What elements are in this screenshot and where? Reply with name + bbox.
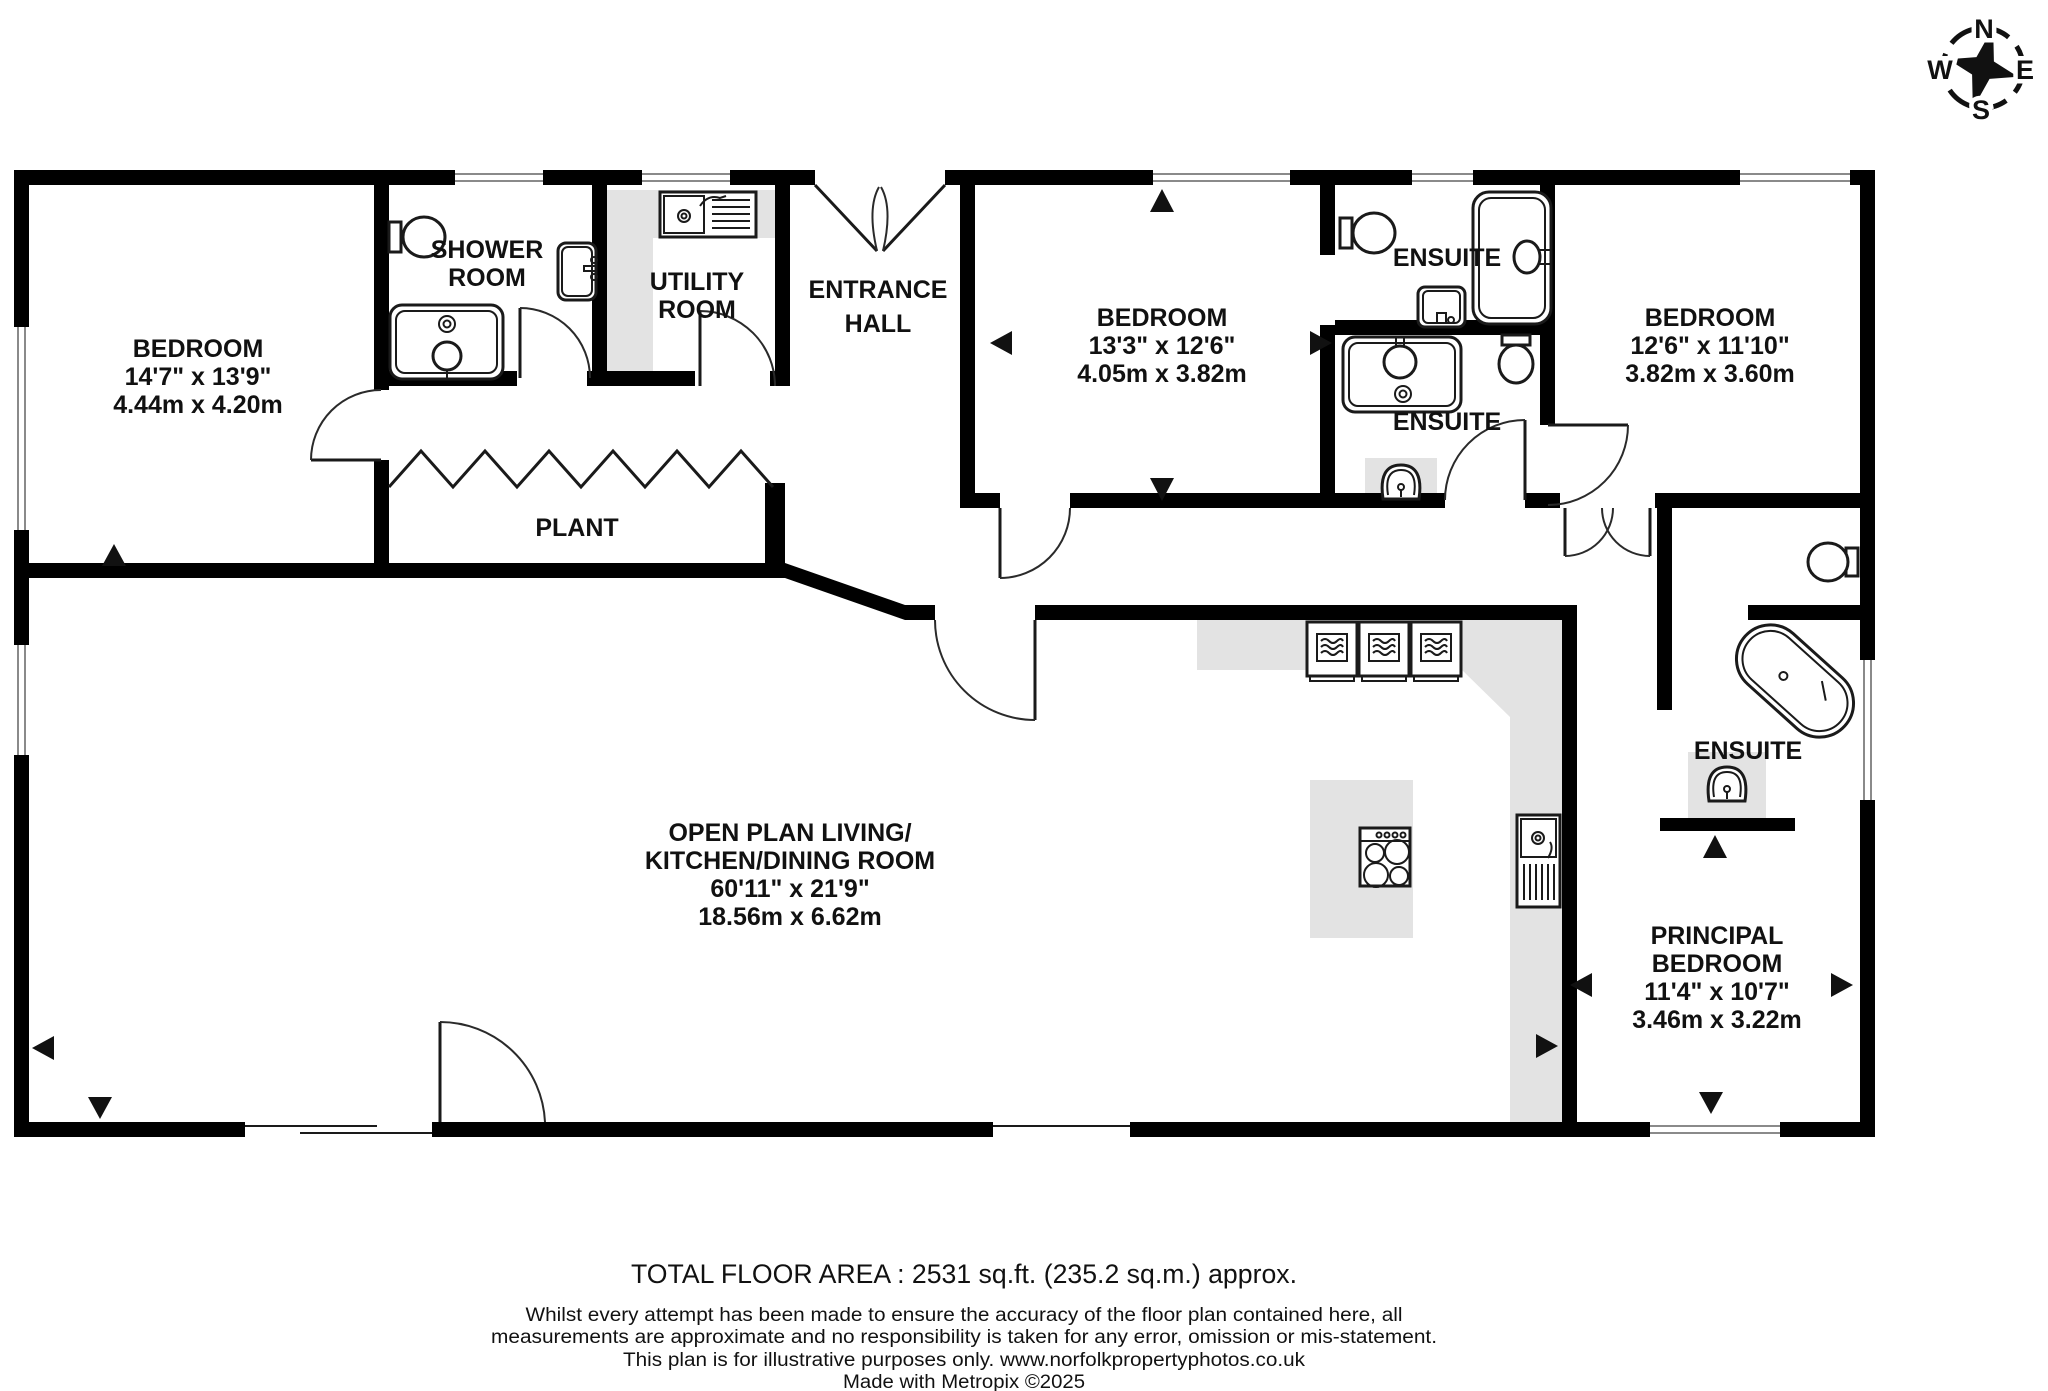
door-bedroom-middle xyxy=(1000,508,1070,578)
room-dims-imperial: 14'7" x 13'9" xyxy=(125,363,272,391)
room-label-utility-room: UTILITY ROOM xyxy=(650,268,745,324)
washbasin-icon xyxy=(1708,767,1746,801)
disclaimer-line: This plan is for illustrative purposes o… xyxy=(623,1350,1306,1371)
arrow-up-icon xyxy=(102,544,126,566)
double-door-principal xyxy=(1565,508,1650,556)
room-name: BEDROOM xyxy=(1645,304,1776,332)
walls xyxy=(14,170,1875,1137)
shower-tray-icon xyxy=(390,305,503,379)
oven-icon xyxy=(1359,622,1409,681)
arrow-left-icon xyxy=(32,1036,54,1060)
compass-north: N xyxy=(1974,14,1994,44)
door-bedroom-left xyxy=(311,390,381,460)
room-name: ENTRANCE xyxy=(809,276,948,304)
disclaimer-line: Made with Metropix ©2025 xyxy=(843,1372,1085,1391)
room-name: ROOM xyxy=(448,264,526,292)
room-dims-metric: 4.44m x 4.20m xyxy=(113,391,283,419)
diagonal-wall xyxy=(785,563,905,620)
arrow-down-icon xyxy=(1699,1092,1723,1114)
room-dims-metric: 3.46m x 3.22m xyxy=(1632,1006,1802,1034)
hob-icon xyxy=(1360,828,1410,887)
room-name: BEDROOM xyxy=(1097,304,1228,332)
total-floor-area: TOTAL FLOOR AREA : 2531 sq.ft. (235.2 sq… xyxy=(631,1259,1297,1289)
arrow-left-icon xyxy=(990,331,1012,355)
toilet-icon xyxy=(1340,213,1395,253)
basin-icon xyxy=(1418,287,1465,327)
room-label-entrance-hall: ENTRANCE HALL xyxy=(809,276,948,338)
door-open-plan xyxy=(935,620,1035,720)
disclaimer-line: measurements are approximate and no resp… xyxy=(491,1327,1437,1348)
room-name: BEDROOM xyxy=(133,335,264,363)
sink-drainer-icon xyxy=(660,192,756,237)
arrow-up-icon xyxy=(1703,835,1727,858)
room-name: HALL xyxy=(845,310,912,338)
disclaimer-line: Whilst every attempt has been made to en… xyxy=(526,1305,1403,1326)
toilet-icon xyxy=(1808,543,1858,581)
room-dims-metric: 18.56m x 6.62m xyxy=(698,903,881,931)
door-shower-room xyxy=(520,308,590,378)
room-name: ROOM xyxy=(658,296,736,324)
room-label-ensuite-upper: ENSUITE xyxy=(1393,244,1501,272)
room-label-bedroom-right: BEDROOM 12'6" x 11'10" 3.82m x 3.60m xyxy=(1625,304,1795,388)
vanity-basin-icon xyxy=(1343,337,1461,412)
ensuite-shelf-wall xyxy=(1660,818,1795,831)
basin-icon xyxy=(558,243,597,300)
floorplan-page: BEDROOM 14'7" x 13'9" 4.44m x 4.20m SHOW… xyxy=(0,0,2048,1391)
room-label-bedroom-middle: BEDROOM 13'3" x 12'6" 4.05m x 3.82m xyxy=(1077,304,1247,388)
sliding-door xyxy=(245,1122,432,1137)
room-label-bedroom-left: BEDROOM 14'7" x 13'9" 4.44m x 4.20m xyxy=(113,335,283,419)
room-dims-imperial: 60'11" x 21'9" xyxy=(710,875,869,903)
room-label-ensuite-principal: ENSUITE xyxy=(1694,737,1802,765)
plant-bifold-doors xyxy=(389,451,773,487)
kitchen-sink-icon xyxy=(1517,815,1560,907)
dimension-arrows xyxy=(32,189,1853,1119)
room-label-ensuite-lower: ENSUITE xyxy=(1393,408,1501,436)
room-dims-imperial: 13'3" x 12'6" xyxy=(1089,332,1236,360)
washbasin-icon xyxy=(1382,465,1420,499)
entrance-double-door xyxy=(815,185,945,251)
floorplan-drawing: BEDROOM 14'7" x 13'9" 4.44m x 4.20m SHOW… xyxy=(0,0,2048,1391)
arrow-down-icon xyxy=(88,1097,112,1119)
room-dims-imperial: 11'4" x 10'7" xyxy=(1644,978,1789,1006)
compass-west: W xyxy=(1927,55,1953,85)
room-dims-metric: 3.82m x 3.60m xyxy=(1625,360,1795,388)
toilet-icon xyxy=(1499,335,1533,383)
compass-rose-icon: N E S W xyxy=(1927,14,2034,125)
bathtub-icon xyxy=(1722,611,1867,751)
arrow-right-icon xyxy=(1831,973,1853,997)
compass-east: E xyxy=(2016,55,2034,85)
room-label-principal-bedroom: PRINCIPAL BEDROOM 11'4" x 10'7" 3.46m x … xyxy=(1632,922,1802,1034)
compass-south: S xyxy=(1972,95,1990,125)
room-name: UTILITY xyxy=(650,268,745,296)
room-label-shower-room: SHOWER ROOM xyxy=(431,236,544,292)
room-label-plant: PLANT xyxy=(535,514,618,542)
windows xyxy=(14,170,1875,1137)
door-garden xyxy=(440,1022,545,1122)
room-name: SHOWER xyxy=(431,236,544,264)
room-name: PRINCIPAL xyxy=(1651,922,1784,950)
arrow-up-icon xyxy=(1150,189,1174,212)
room-name: OPEN PLAN LIVING/ xyxy=(668,819,911,847)
oven-icon xyxy=(1411,622,1461,681)
room-name: KITCHEN/DINING ROOM xyxy=(645,847,935,875)
room-name: BEDROOM xyxy=(1652,950,1783,978)
room-dims-metric: 4.05m x 3.82m xyxy=(1077,360,1247,388)
oven-icon xyxy=(1307,622,1357,681)
footer: TOTAL FLOOR AREA : 2531 sq.ft. (235.2 sq… xyxy=(491,1259,1437,1391)
room-dims-imperial: 12'6" x 11'10" xyxy=(1630,332,1789,360)
room-label-open-plan: OPEN PLAN LIVING/ KITCHEN/DINING ROOM 60… xyxy=(645,819,935,931)
